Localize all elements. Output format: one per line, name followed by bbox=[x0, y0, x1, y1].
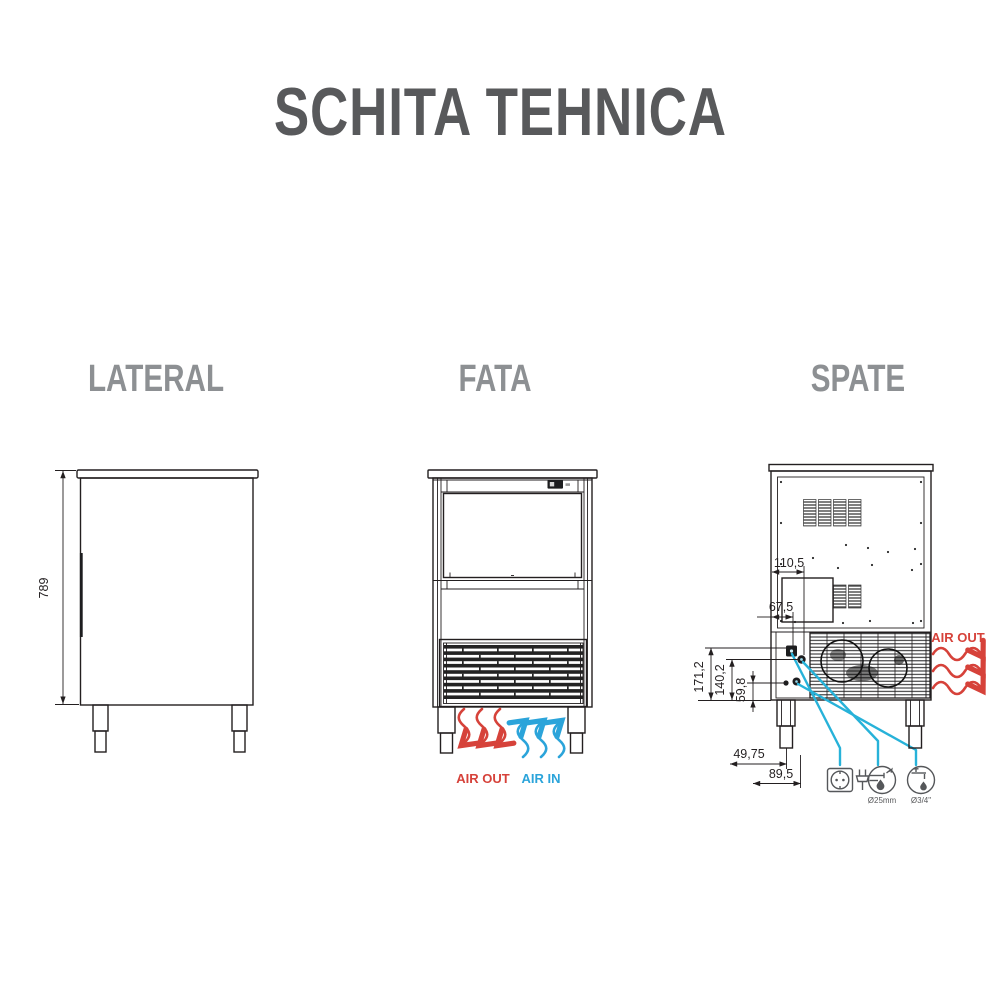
drain-icon bbox=[869, 767, 896, 794]
dim-leg-offset: 49,75 bbox=[730, 747, 787, 769]
fata-view: AIR OUT AIR IN bbox=[428, 470, 597, 786]
svg-text:89,5: 89,5 bbox=[769, 767, 793, 781]
lateral-body bbox=[81, 478, 254, 705]
air-in-label-front: AIR IN bbox=[522, 771, 561, 786]
svg-text:171,2: 171,2 bbox=[692, 661, 706, 692]
lateral-view: 789 bbox=[37, 470, 258, 752]
fata-header-band bbox=[433, 480, 592, 492]
air-in-arrows-front bbox=[518, 723, 565, 757]
grille-louvers bbox=[444, 643, 583, 704]
air-out-arrows-rear bbox=[933, 648, 981, 694]
display-badge-icon bbox=[550, 482, 554, 486]
air-out-arrows-front bbox=[459, 709, 506, 743]
spate-upper-vents bbox=[804, 500, 862, 527]
water-inlet-icon bbox=[908, 767, 935, 794]
air-out-label-front: AIR OUT bbox=[456, 771, 510, 786]
power-socket-icon bbox=[828, 769, 853, 792]
lateral-height-dimension: 789 bbox=[37, 471, 79, 705]
svg-text:140,2: 140,2 bbox=[713, 664, 727, 695]
drawing-canvas: 789 bbox=[0, 0, 1000, 1000]
power-plug-icon bbox=[857, 770, 869, 791]
spate-lower-vents bbox=[834, 585, 862, 608]
fata-top-lid bbox=[428, 470, 597, 478]
spate-view: 110,5 67,5 171,2 140,2 bbox=[692, 465, 985, 806]
indicator-mark bbox=[566, 483, 571, 486]
dim-gland-offset: 67,5 bbox=[757, 600, 793, 646]
lateral-legs bbox=[93, 705, 247, 752]
svg-text:49,75: 49,75 bbox=[733, 747, 764, 761]
fata-ventilation-grille bbox=[440, 640, 587, 707]
air-out-label-rear: AIR OUT bbox=[931, 630, 985, 645]
fata-door bbox=[444, 494, 582, 578]
svg-text:110,5: 110,5 bbox=[774, 556, 804, 570]
spate-top-lid bbox=[769, 465, 933, 472]
svg-text:59,8: 59,8 bbox=[734, 678, 748, 702]
lateral-top-lid bbox=[77, 470, 258, 478]
lateral-height-value: 789 bbox=[37, 578, 51, 599]
svg-text:67,5: 67,5 bbox=[769, 600, 793, 614]
drain-size-label: Ø25mm bbox=[868, 796, 897, 805]
water-size-label: Ø3/4" bbox=[911, 796, 931, 805]
dim-drain-height: 140,2 bbox=[713, 660, 798, 701]
spate-fittings bbox=[783, 646, 805, 686]
fata-drip-band bbox=[433, 581, 592, 590]
technical-drawing-page: SCHITA TEHNICA LATERAL FATA SPATE 789 bbox=[0, 0, 1000, 1000]
